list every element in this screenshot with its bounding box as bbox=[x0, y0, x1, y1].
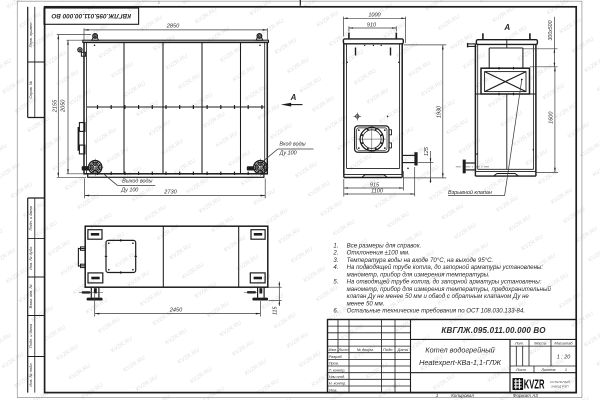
svg-text:2.: 2. bbox=[332, 250, 338, 257]
svg-text:клапан Ду не менее 50 мм и обв: клапан Ду не менее 50 мм и обвод с обрат… bbox=[347, 293, 530, 300]
svg-text:Изм.: Изм. bbox=[329, 347, 337, 352]
svg-text:А: А bbox=[290, 93, 297, 102]
svg-text:Остальные технические требован: Остальные технические требования по ОСТ … bbox=[347, 308, 525, 315]
svg-text:Копировал: Копировал bbox=[451, 393, 474, 398]
svg-text:Ду 100: Ду 100 bbox=[279, 151, 297, 157]
svg-text:Взрывной клапан: Взрывной клапан bbox=[448, 189, 492, 196]
svg-text:5.: 5. bbox=[333, 279, 338, 286]
svg-text:Heatexpert-КВа-1,1-ГЛЖ: Heatexpert-КВа-1,1-ГЛЖ bbox=[419, 358, 502, 367]
svg-text:Формат А3: Формат А3 bbox=[513, 393, 539, 398]
svg-text:Температура воды на входе 70°С: Температура воды на входе 70°С, на выход… bbox=[347, 257, 494, 264]
svg-text:КВГЛЖ.095.011.00.000 ВО: КВГЛЖ.095.011.00.000 ВО bbox=[441, 326, 546, 335]
svg-text:Вход воды: Вход воды bbox=[279, 142, 305, 148]
svg-text:1000: 1000 bbox=[368, 13, 381, 19]
svg-text:Инв. № дубл.: Инв. № дубл. bbox=[28, 246, 33, 270]
svg-text:Подп. и дата: Подп. и дата bbox=[28, 323, 33, 348]
svg-text:4.: 4. bbox=[333, 264, 338, 271]
svg-text:Котел водогрейный: Котел водогрейный bbox=[425, 346, 494, 355]
svg-text:КОТЕЛЬНЫЙ: КОТЕЛЬНЫЙ bbox=[550, 380, 570, 384]
svg-text:Т. контр.: Т. контр. bbox=[329, 367, 346, 372]
svg-text:Пров.: Пров. bbox=[329, 361, 339, 366]
svg-text:Перв. примен.: Перв. примен. bbox=[28, 21, 33, 47]
svg-text:2: 2 bbox=[158, 1, 160, 5]
svg-text:1: 1 bbox=[436, 393, 439, 398]
svg-text:125: 125 bbox=[424, 147, 430, 156]
svg-text:2850: 2850 bbox=[166, 24, 180, 30]
svg-text:300х500: 300х500 bbox=[548, 20, 554, 40]
svg-text:1600: 1600 bbox=[548, 111, 554, 124]
svg-text:1100: 1100 bbox=[371, 188, 384, 194]
svg-text:Все размеры для справок.: Все размеры для справок. bbox=[347, 242, 422, 249]
svg-text:менее 50 мм.: менее 50 мм. bbox=[347, 301, 385, 308]
svg-text:1: 1 bbox=[565, 367, 567, 372]
svg-text:Масштаб: Масштаб bbox=[554, 340, 573, 345]
svg-text:Инв. № подл.: Инв. № подл. bbox=[28, 362, 33, 386]
svg-text:Лист: Лист bbox=[337, 347, 349, 352]
svg-text:2730: 2730 bbox=[163, 190, 177, 196]
svg-text:ЗАВОД РЭП: ЗАВОД РЭП bbox=[551, 385, 570, 389]
svg-text:Нач.отд.: Нач.отд. bbox=[329, 374, 345, 379]
svg-text:А: А bbox=[503, 23, 510, 32]
svg-text:2155: 2155 bbox=[52, 99, 58, 113]
svg-text:2450: 2450 bbox=[169, 308, 183, 314]
svg-text:манометр, прибор для измерения: манометр, прибор для измерения температу… bbox=[347, 286, 552, 293]
svg-text:Отклонения ±100 мм.: Отклонения ±100 мм. bbox=[347, 250, 410, 257]
svg-text:Разраб.: Разраб. bbox=[329, 354, 343, 359]
svg-text:6.: 6. bbox=[333, 308, 338, 315]
svg-text:3.: 3. bbox=[333, 257, 338, 264]
svg-text:KVZR: KVZR bbox=[524, 378, 545, 392]
svg-text:2050: 2050 bbox=[61, 99, 67, 113]
svg-text:Выход воды: Выход воды bbox=[122, 179, 152, 185]
svg-text:Лит.: Лит. bbox=[514, 340, 524, 345]
svg-text:На подводящей трубе котла, до: На подводящей трубе котла, до запорной а… bbox=[347, 264, 544, 271]
svg-text:Дата: Дата bbox=[397, 347, 409, 352]
svg-text:1.: 1. bbox=[333, 242, 338, 249]
svg-text:№ докум.: № докум. bbox=[357, 347, 374, 352]
svg-text:115: 115 bbox=[273, 307, 279, 315]
svg-text:1930: 1930 bbox=[437, 105, 443, 118]
svg-text:Н. контр.: Н. контр. bbox=[329, 381, 347, 386]
svg-text:Справ. №: Справ. № bbox=[28, 80, 33, 98]
svg-text:1 : 20: 1 : 20 bbox=[557, 354, 571, 360]
svg-text:Ду 100: Ду 100 bbox=[120, 187, 138, 193]
svg-text:910: 910 bbox=[367, 22, 377, 28]
svg-text:Утв.: Утв. bbox=[329, 387, 338, 392]
svg-text:Взам. инв. №: Взам. инв. № bbox=[28, 283, 33, 308]
svg-text:манометр, прибор для измерения: манометр, прибор для измерения температу… bbox=[347, 271, 490, 278]
svg-text:Подп. и дата: Подп. и дата bbox=[28, 205, 33, 230]
svg-text:Лист: Лист bbox=[515, 367, 527, 372]
svg-text:КВГЛЖ.095.011.00.000 ВО: КВГЛЖ.095.011.00.000 ВО bbox=[51, 12, 131, 19]
svg-text:На отводящей трубе котла, до з: На отводящей трубе котла, до запорной ар… bbox=[347, 279, 542, 286]
svg-text:Листов: Листов bbox=[540, 367, 555, 372]
svg-text:Подп.: Подп. bbox=[383, 347, 393, 352]
svg-text:Масса: Масса bbox=[534, 340, 546, 345]
